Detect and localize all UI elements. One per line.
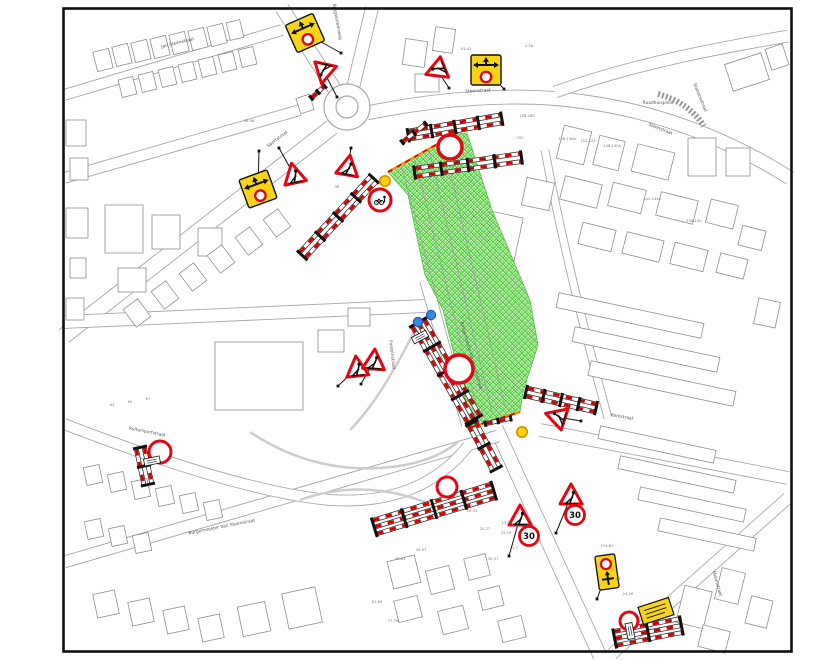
svg-text:30: 30 bbox=[523, 532, 535, 542]
street-label: Stationsstraat bbox=[691, 82, 708, 113]
house-number-label: 45-57 bbox=[416, 548, 427, 552]
utility-marker bbox=[413, 317, 422, 326]
warning-lamp bbox=[380, 176, 390, 186]
barrier-fence bbox=[399, 120, 429, 145]
house-number-label: 15-19 bbox=[501, 531, 512, 535]
house-number-label: 158-260 bbox=[519, 114, 535, 118]
roadworks-warning-triangle bbox=[560, 484, 582, 504]
roadworks-warning-triangle bbox=[336, 153, 361, 177]
house-number-label: 29-31 bbox=[467, 509, 478, 513]
house-number-label: 1-7 bbox=[512, 546, 519, 550]
detour-sign bbox=[471, 55, 501, 85]
house-number-label: 252 bbox=[516, 136, 523, 140]
house-number-label: 57a-61 bbox=[601, 544, 614, 548]
house-number-label: 13-15 bbox=[502, 521, 513, 525]
house-number-label: 36 bbox=[335, 185, 340, 189]
no-entry-sign bbox=[438, 135, 462, 159]
house-number-label: 77-79 bbox=[388, 619, 399, 623]
house-number-label: 25-27 bbox=[480, 527, 491, 531]
house-number-label: 148-150a bbox=[603, 144, 621, 148]
house-number-label: 152-154 bbox=[580, 139, 596, 143]
street-label: Ruitersportstraat bbox=[128, 426, 166, 439]
house-number-label: 28 bbox=[616, 577, 621, 581]
roadworks-warning-triangle bbox=[362, 348, 385, 369]
street-label: Raadhuisplein bbox=[643, 100, 674, 106]
house-number-label: 24-26 bbox=[623, 592, 634, 596]
detour-sign-vertical bbox=[595, 554, 620, 590]
street-label: Sportstraat bbox=[266, 129, 290, 149]
svg-text:30: 30 bbox=[569, 511, 581, 521]
house-number-label: 81-85 bbox=[372, 600, 383, 604]
house-number-label: 41-43 bbox=[461, 47, 472, 51]
street-label: Fonteinstraat bbox=[387, 340, 397, 370]
house-number-label: 138-140 bbox=[686, 219, 702, 223]
house-number-label: 63 bbox=[110, 403, 115, 407]
house-number-label: 65 bbox=[128, 400, 133, 404]
speed-limit-30-sign: 30 bbox=[566, 506, 585, 525]
speed-limit-30-sign: 30 bbox=[520, 527, 539, 546]
plan-canvas: 3030 Jan SteenstraatBrugsesteenwegSteens… bbox=[0, 0, 835, 660]
no-entry-sign bbox=[445, 355, 473, 383]
no-entry-sign bbox=[437, 477, 457, 497]
house-number-label: 59-61 bbox=[395, 557, 406, 561]
house-number-label: 2-2b bbox=[525, 44, 534, 48]
house-number-label: 56-58 bbox=[244, 119, 255, 123]
house-number-label: 67 bbox=[146, 397, 151, 401]
warning-lamp bbox=[517, 427, 527, 437]
house-number-label: 142-144a bbox=[643, 197, 661, 201]
house-number-label: 35-37 bbox=[488, 557, 499, 561]
no-through-pedestrians-cyclists-sign bbox=[369, 189, 391, 211]
house-number-label: 156-156a bbox=[558, 137, 576, 141]
utility-marker bbox=[426, 310, 435, 319]
street-label: Kerkstraat bbox=[611, 412, 635, 422]
roadworks-plan-page: 3030 Jan SteenstraatBrugsesteenwegSteens… bbox=[0, 0, 835, 660]
